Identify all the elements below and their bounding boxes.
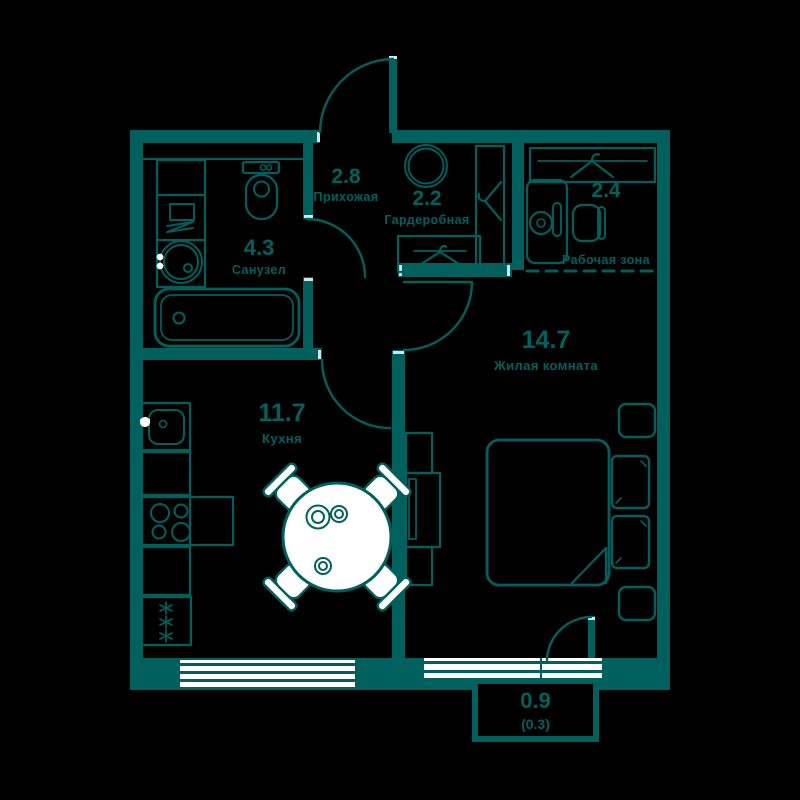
room-area: 14.7 <box>494 328 598 353</box>
room-area: 4.3 <box>232 237 286 259</box>
entrance-door-arc-icon <box>320 59 393 132</box>
room-label-hallway: 2.8 Прихожая <box>314 166 379 204</box>
fridge-icon <box>142 597 191 645</box>
toilet-icon <box>243 162 279 219</box>
floor-plan: 0.9 (0.3) <box>0 0 800 800</box>
bed-icon <box>487 440 609 585</box>
room-label-bathroom: 4.3 Санузел <box>232 237 286 277</box>
workzone-closet-hanger-icon <box>530 148 655 182</box>
room-label-living-room: 14.7 Жилая комната <box>494 328 598 372</box>
room-name: Рабочая зона <box>562 254 650 267</box>
mirror-circle-icon <box>405 145 447 187</box>
room-area: 2.2 <box>384 188 469 209</box>
desk-icon <box>527 180 567 263</box>
washing-machine-icon <box>167 204 194 232</box>
dining-table-icon <box>283 483 391 591</box>
lamp-icon <box>530 212 552 234</box>
pillow-icon <box>612 516 649 568</box>
room-name: Кухня <box>258 432 305 445</box>
tv-console-icon <box>406 433 440 585</box>
bathroom-door-arc-icon <box>307 219 365 277</box>
kitchen-door-arc-icon <box>322 360 390 428</box>
wardrobe-shelf-hanger-icon <box>398 236 480 272</box>
room-area: 2.8 <box>314 166 379 187</box>
nightstand-icon <box>619 587 655 620</box>
nightstand-icon <box>619 404 655 437</box>
stove-icon <box>142 497 233 545</box>
balcony-door-arc-icon <box>547 617 591 660</box>
room-area: 2.4 <box>562 180 650 201</box>
room-label-wardrobe: 2.2 Гардеробная <box>384 188 469 227</box>
pillow-icon <box>612 456 649 508</box>
living-door-arc-icon <box>404 282 472 350</box>
round-sink-icon <box>158 241 202 283</box>
room-name: Прихожая <box>314 191 379 204</box>
room-area: 11.7 <box>258 401 305 426</box>
blanket-fold <box>572 548 606 583</box>
room-name: Гардеробная <box>384 214 469 227</box>
bathtub-icon <box>155 289 299 346</box>
room-label-work-zone: 2.4 Рабочая зона <box>562 180 650 267</box>
kitchen-counter <box>142 452 190 495</box>
kitchen-counter <box>142 547 190 595</box>
room-name: Жилая комната <box>494 359 598 372</box>
room-label-kitchen: 11.7 Кухня <box>258 401 305 445</box>
kitchen-sink-icon <box>140 403 190 450</box>
room-name: Санузел <box>232 264 286 277</box>
